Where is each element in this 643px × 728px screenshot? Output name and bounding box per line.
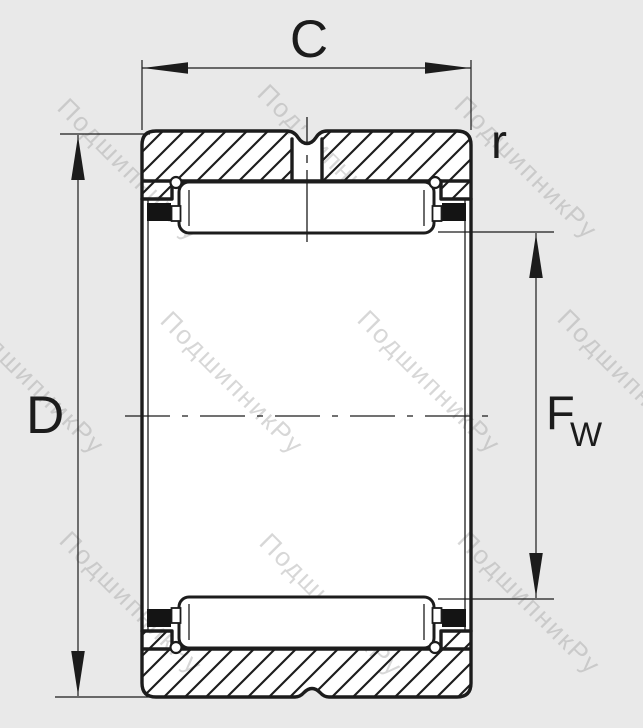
cage-end-top-left: [172, 206, 181, 221]
bottom-roller: [179, 597, 434, 648]
cage-pin-bottom-right: [430, 642, 441, 653]
c-label: C: [290, 10, 328, 69]
cage-end-bottom-left: [172, 608, 181, 623]
cage-pin-top-left: [171, 177, 182, 188]
cage-end-bottom-right: [433, 608, 442, 623]
bearing-cross-section-diagram: ПодшипникРу ПодшипникРу ПодшипникРу Подш…: [0, 0, 643, 728]
drawing-canvas: ПодшипникРу ПодшипникРу ПодшипникРу Подш…: [0, 0, 643, 728]
d-label: D: [26, 386, 64, 445]
seal-bottom-left: [147, 609, 171, 627]
r-label: r: [491, 116, 507, 169]
seal-top-left: [147, 203, 171, 221]
seal-bottom-right: [442, 609, 466, 627]
cage-pin-top-right: [430, 177, 441, 188]
cage-pin-bottom-left: [171, 642, 182, 653]
fw-label-sub: W: [570, 416, 602, 454]
seal-top-right: [442, 203, 466, 221]
cage-end-top-right: [433, 206, 442, 221]
